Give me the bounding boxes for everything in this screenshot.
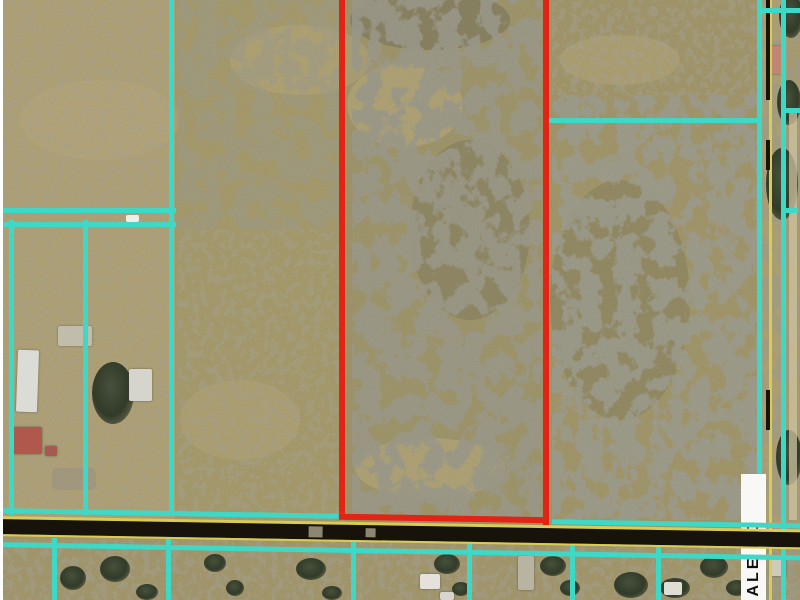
subject-parcel-outline-right <box>543 0 549 526</box>
parcel-line-vertical <box>83 220 88 515</box>
parcel-line-vertical <box>9 220 14 515</box>
map-viewport[interactable]: DALE RD <box>0 0 800 600</box>
parcel-line-horizontal <box>784 208 798 213</box>
parcel-line-horizontal <box>759 8 800 13</box>
parcel-line-horizontal <box>784 108 800 113</box>
highway-surface-gap <box>366 528 376 537</box>
parcel-line-vertical <box>169 0 174 513</box>
parcel-line-vertical <box>781 0 786 600</box>
parcel-line-horizontal <box>548 118 760 123</box>
parcel-line-horizontal <box>0 208 176 213</box>
parcel-line-horizontal <box>0 222 176 227</box>
image-border <box>0 0 3 600</box>
subject-parcel-outline-left <box>339 0 345 519</box>
highway-surface-gap <box>309 526 323 537</box>
